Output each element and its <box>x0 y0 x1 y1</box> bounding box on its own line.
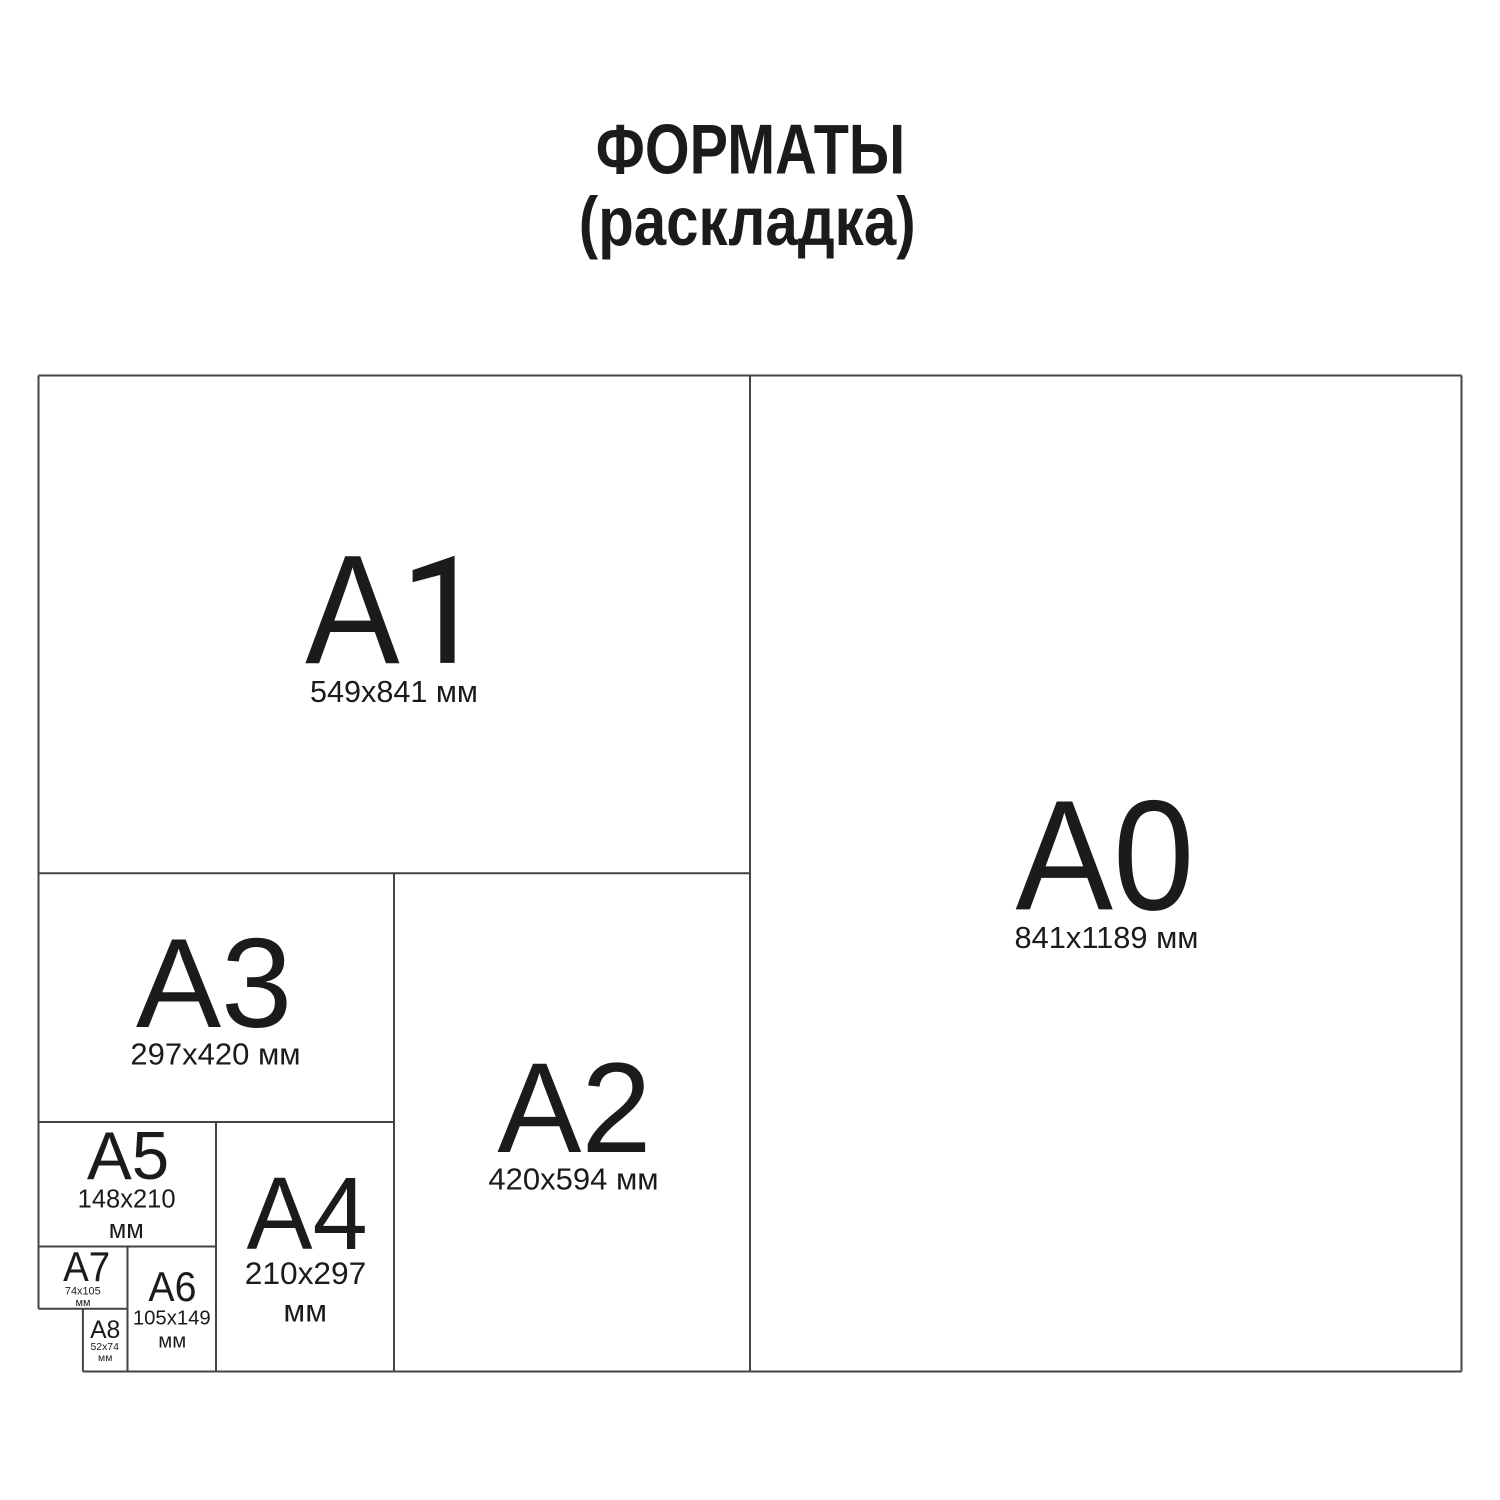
svg-text:A0: A0 <box>1015 769 1194 944</box>
svg-text:297x420 мм: 297x420 мм <box>130 1037 300 1072</box>
svg-text:549x841 мм: 549x841 мм <box>310 675 478 709</box>
svg-text:105x149: 105x149 <box>133 1307 211 1329</box>
svg-text:A6: A6 <box>148 1263 196 1310</box>
svg-text:841x1189 мм: 841x1189 мм <box>1015 920 1199 955</box>
svg-text:52x74: 52x74 <box>91 1342 120 1353</box>
svg-text:A2: A2 <box>497 1036 651 1179</box>
svg-text:A7: A7 <box>63 1244 110 1291</box>
svg-text:A3: A3 <box>136 912 292 1054</box>
svg-text:148x210: 148x210 <box>78 1186 176 1214</box>
svg-text:мм: мм <box>283 1293 327 1329</box>
svg-text:420x594 мм: 420x594 мм <box>488 1162 658 1197</box>
svg-text:A8: A8 <box>90 1317 120 1344</box>
svg-text:ФОРМАТЫ: ФОРМАТЫ <box>596 110 905 189</box>
svg-text:A: A <box>305 522 400 696</box>
svg-text:мм: мм <box>76 1297 91 1309</box>
svg-text:210x297: 210x297 <box>245 1255 367 1291</box>
svg-text:A5: A5 <box>87 1119 169 1194</box>
svg-text:мм: мм <box>98 1353 112 1364</box>
svg-text:(раскладка): (раскладка) <box>579 183 916 261</box>
svg-text:мм: мм <box>158 1331 186 1353</box>
svg-text:мм: мм <box>109 1216 144 1244</box>
